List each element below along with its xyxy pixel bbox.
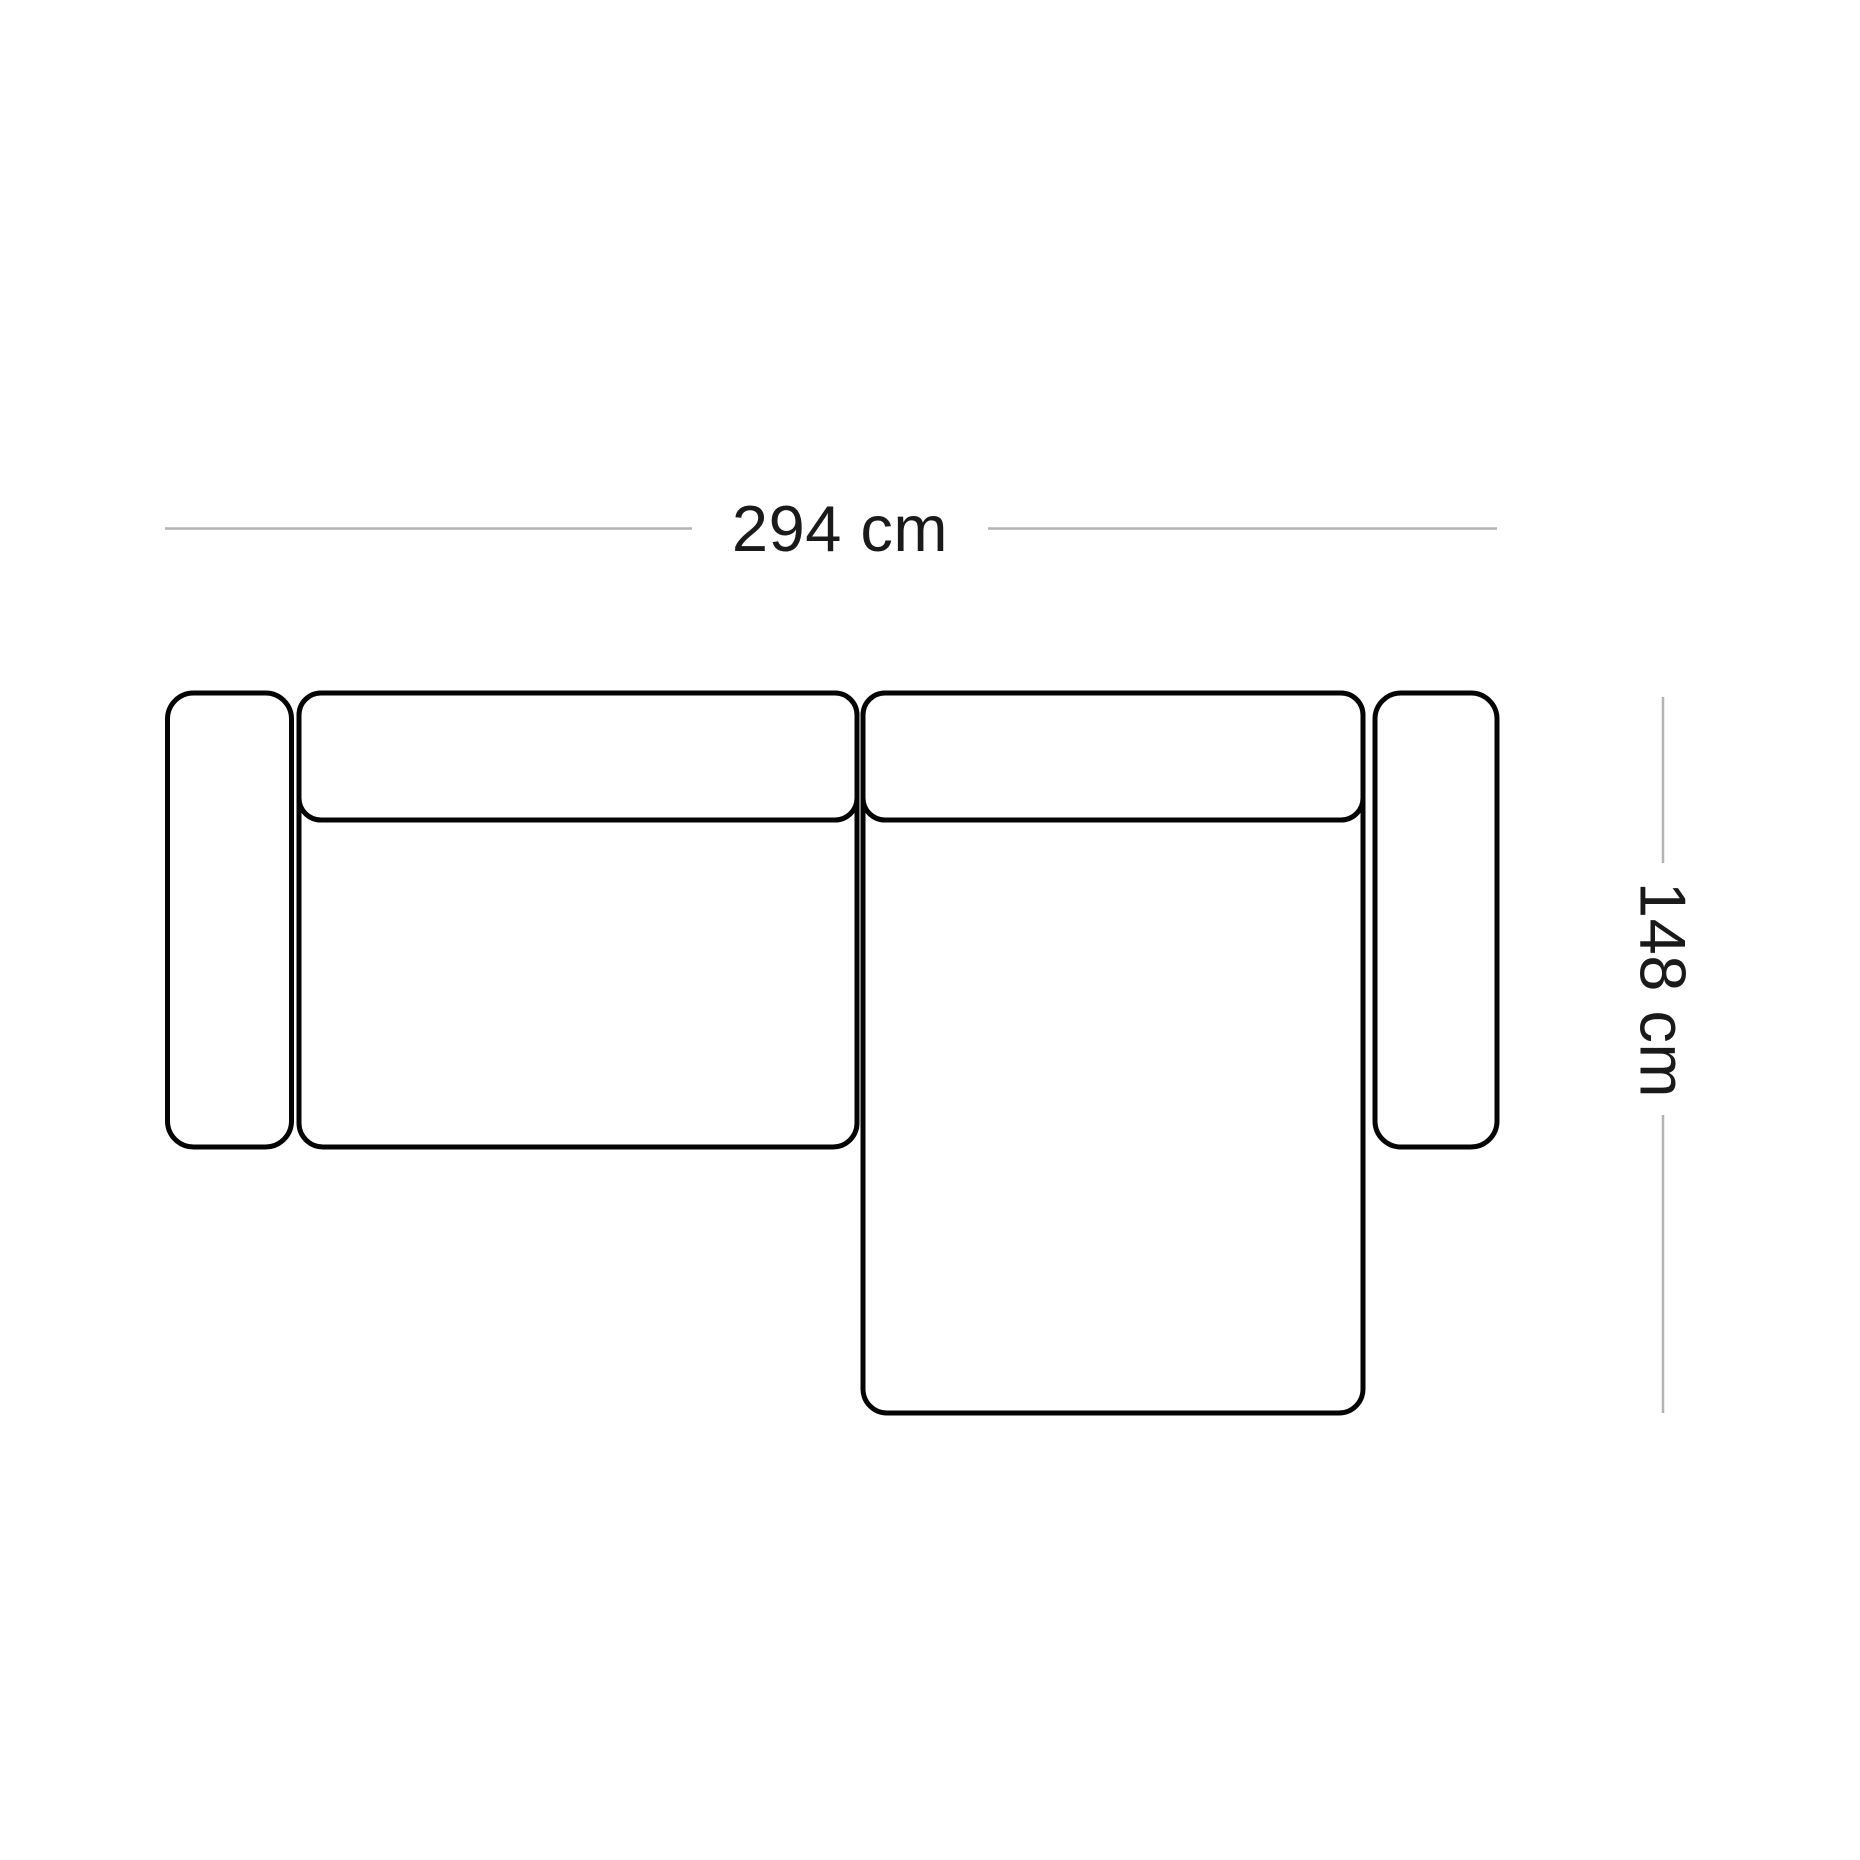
diagram-canvas: 294 cm 148 cm: [0, 0, 1860, 1860]
left-seat-backrest: [299, 693, 857, 820]
right-armrest: [1375, 693, 1497, 1147]
sofa-outline: [168, 693, 1498, 1413]
depth-dimension: 148 cm: [1626, 697, 1699, 1413]
width-dimension-label: 294 cm: [732, 492, 948, 565]
depth-dimension-label: 148 cm: [1626, 882, 1699, 1098]
width-dimension: 294 cm: [165, 492, 1497, 565]
chaise-backrest: [863, 693, 1363, 820]
left-armrest: [168, 693, 292, 1147]
